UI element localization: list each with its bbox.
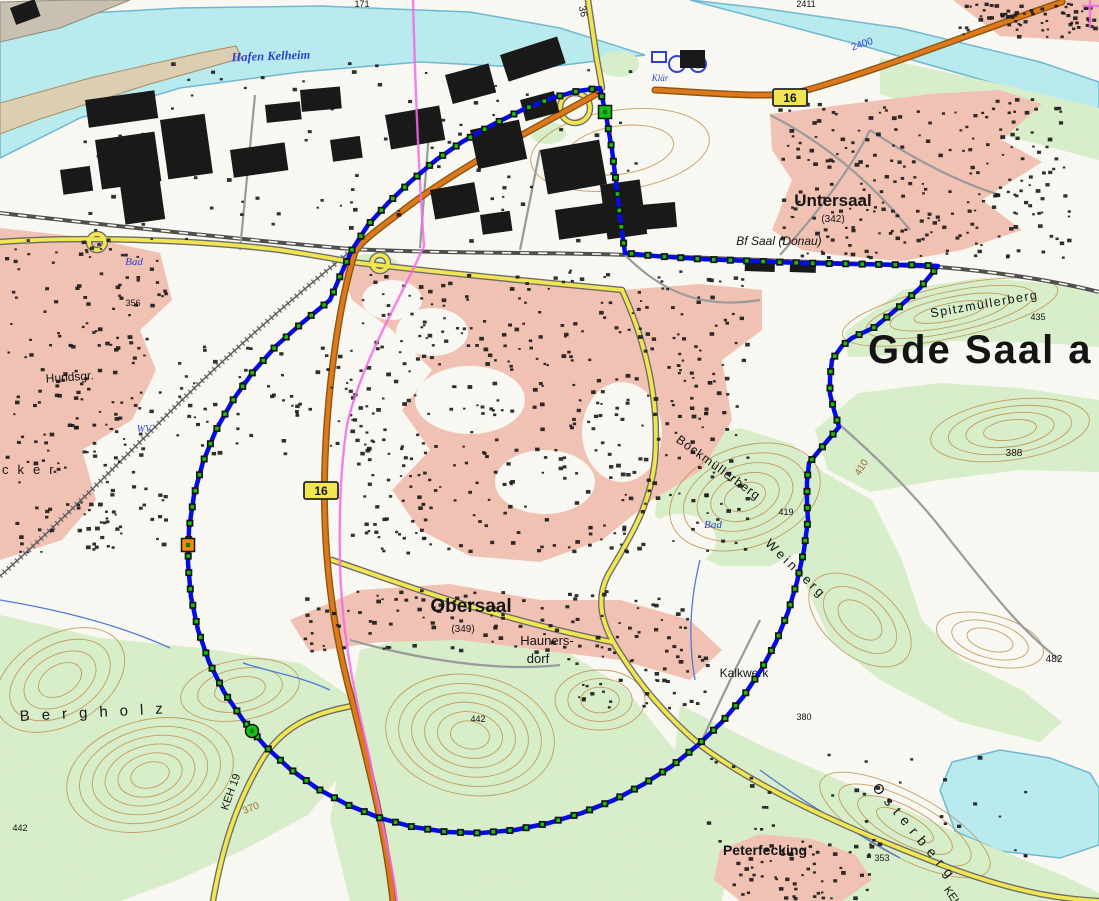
map-viewport: 16 16 Hafen KelheimKlär3617124112400Unte… (0, 0, 1099, 901)
map-canvas[interactable]: 16 16 Hafen KelheimKlär3617124112400Unte… (0, 0, 1099, 901)
paper-texture (0, 0, 1099, 901)
